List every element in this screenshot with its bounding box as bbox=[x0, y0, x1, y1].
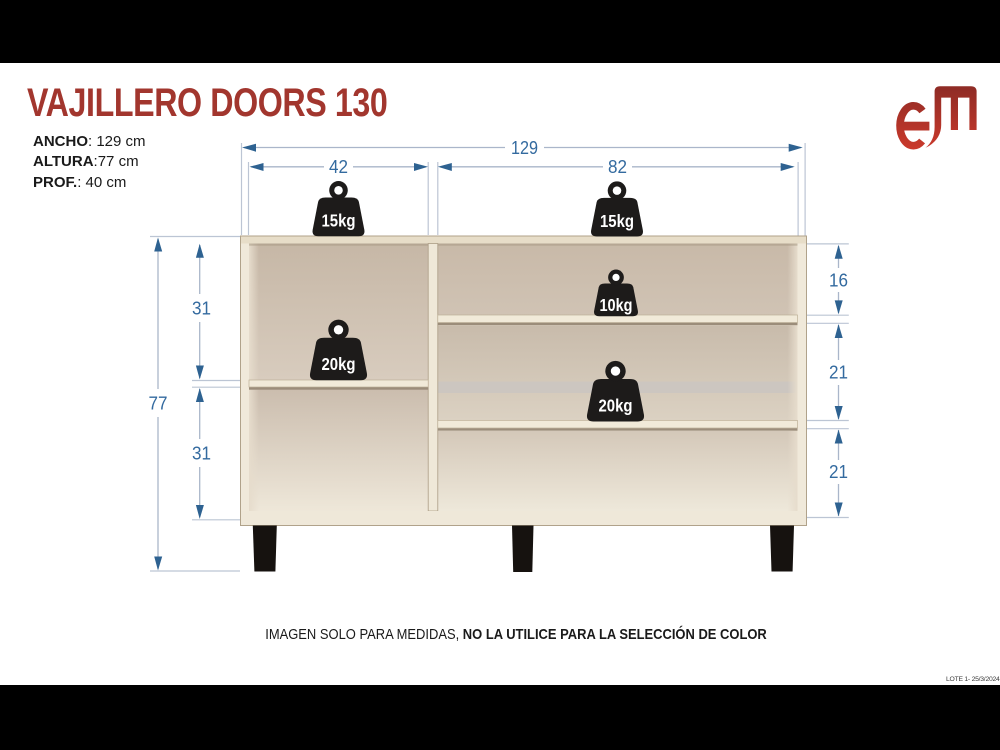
svg-text:31: 31 bbox=[192, 299, 211, 319]
svg-text:42: 42 bbox=[329, 157, 348, 177]
svg-text:15kg: 15kg bbox=[322, 211, 356, 231]
svg-text:129: 129 bbox=[511, 138, 538, 158]
svg-text:21: 21 bbox=[829, 462, 848, 482]
svg-text:31: 31 bbox=[192, 444, 211, 464]
svg-text:20kg: 20kg bbox=[322, 354, 356, 374]
svg-text:10kg: 10kg bbox=[600, 295, 633, 315]
svg-text:16: 16 bbox=[829, 270, 848, 290]
svg-text:21: 21 bbox=[829, 363, 848, 383]
svg-text:77: 77 bbox=[149, 394, 168, 414]
svg-text:15kg: 15kg bbox=[600, 211, 634, 231]
svg-text:20kg: 20kg bbox=[599, 396, 633, 416]
svg-text:82: 82 bbox=[608, 157, 627, 177]
